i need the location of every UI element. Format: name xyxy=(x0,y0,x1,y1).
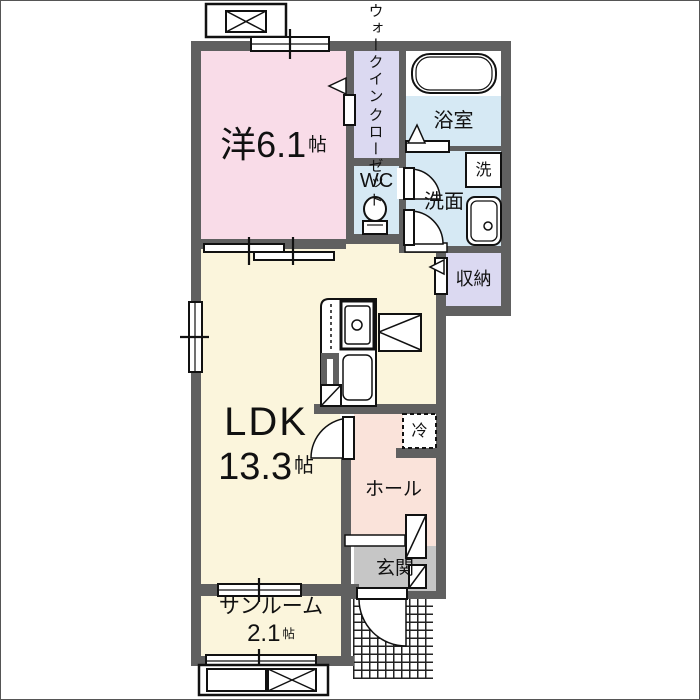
entrance-text: 玄関 xyxy=(376,559,414,578)
floor-plan: 洋6.1帖 ウォークイン クローゼット WC 浴室 洗面 洗 収納 LDK 13… xyxy=(0,0,700,700)
closet-label-line2: クローゼット xyxy=(368,107,383,209)
wc-label: WC xyxy=(354,171,399,191)
washroom-text: 洗面 xyxy=(424,192,464,212)
bathroom-label: 浴室 xyxy=(406,109,501,133)
bedroom-area: 6.1 xyxy=(256,127,306,163)
bedroom-unit: 帖 xyxy=(308,136,327,155)
ldk-area: 13.3 xyxy=(218,448,292,486)
front-door-icon xyxy=(357,588,407,646)
refrigerator-text: 冷 xyxy=(411,424,427,440)
laundry-text: 洗 xyxy=(475,163,491,179)
entrance-step-icon xyxy=(345,535,405,546)
laundry-label: 洗 xyxy=(466,159,501,183)
storage-label: 収納 xyxy=(446,267,501,291)
hall-text: ホール xyxy=(365,480,422,499)
bedroom-name: 洋 xyxy=(220,127,256,163)
ldk-unit: 帖 xyxy=(294,457,314,477)
ldk-text: LDK xyxy=(224,402,308,442)
washroom-door-icon xyxy=(404,210,447,252)
outdoor-unit-bottom-icon xyxy=(199,665,328,695)
bathroom-text: 浴室 xyxy=(434,111,474,131)
outdoor-unit-top-icon xyxy=(206,4,286,37)
walk-in-closet-label: ウォークイン クローゼット xyxy=(351,53,399,159)
sunroom-area: 2.1 xyxy=(247,622,280,646)
bedroom-label: 洋6.1帖 xyxy=(201,119,346,171)
kitchen-counter-icon xyxy=(321,299,376,406)
storage-text: 収納 xyxy=(456,270,492,288)
sunroom-area-label: 2.1帖 xyxy=(201,621,341,647)
bathtub-icon xyxy=(406,51,501,96)
storage-door-icon xyxy=(430,258,447,294)
refrigerator-label: 冷 xyxy=(403,422,436,442)
closet-label-line1: ウォークイン xyxy=(368,3,383,105)
wc-text: WC xyxy=(360,171,393,191)
ldk-area-label: 13.3帖 xyxy=(186,445,346,489)
washroom-label: 洗面 xyxy=(409,191,479,213)
sliding-door-bedroom-icon xyxy=(204,237,334,265)
sunroom-label: サンルーム xyxy=(201,595,341,617)
window-left-icon xyxy=(180,302,209,372)
hall-label: ホール xyxy=(351,477,436,501)
sunroom-unit: 帖 xyxy=(282,628,294,640)
entrance-label: 玄関 xyxy=(354,556,436,580)
shelf-icon xyxy=(379,314,421,351)
ldk-label: LDK xyxy=(201,399,331,445)
sunroom-text: サンルーム xyxy=(219,596,323,617)
